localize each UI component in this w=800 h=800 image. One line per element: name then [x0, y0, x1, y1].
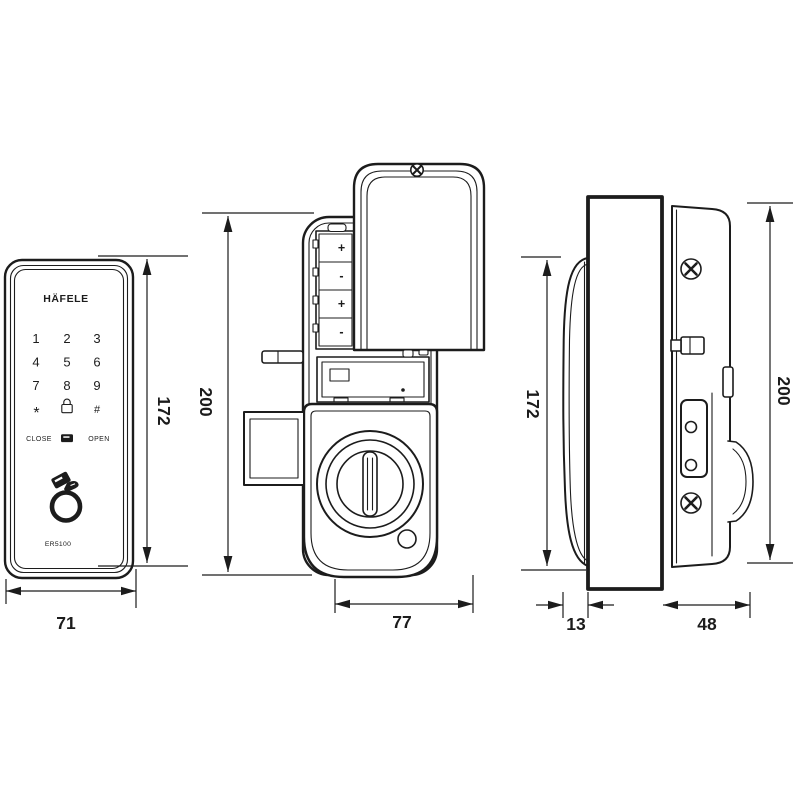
- back-height-dimension: 200: [196, 213, 314, 575]
- side-latch-tab: [671, 337, 704, 354]
- lower-cover: [304, 404, 437, 577]
- key-1[interactable]: 1: [32, 331, 39, 346]
- reader-ring[interactable]: [52, 493, 80, 521]
- side-view: 172 200 13 48: [521, 197, 794, 634]
- battery-minus-2: -: [339, 325, 343, 339]
- key-9[interactable]: 9: [93, 378, 100, 393]
- spindle-tab: [262, 351, 303, 363]
- screw-icon: [681, 493, 701, 513]
- dimension-drawing: HÄFELE 1 2 3 4 5 6 7 8 9 * # CLOSE: [0, 0, 800, 800]
- panel-depth-dimension: 13: [536, 592, 614, 634]
- lock-button[interactable]: [398, 530, 416, 548]
- brand-logo: HÄFELE: [43, 292, 89, 305]
- side-thumbturn: [728, 441, 753, 522]
- side-front-panel: [563, 258, 588, 566]
- back-width-dim-label: 77: [392, 612, 411, 632]
- front-panel-outline: [5, 260, 133, 578]
- door-section: [588, 197, 662, 589]
- side-back-height-dimension: 200: [747, 203, 794, 563]
- front-height-dim-label: 172: [154, 396, 174, 425]
- key-star[interactable]: *: [33, 405, 39, 422]
- key-2[interactable]: 2: [63, 331, 70, 346]
- body-depth-dim-label: 48: [697, 614, 717, 634]
- battery-plus-2: +: [338, 297, 345, 311]
- battery-minus-1: -: [339, 269, 343, 283]
- cover-screw-icon: [411, 164, 423, 176]
- cover-latch-tab: [403, 350, 413, 357]
- back-view: + - + -: [196, 164, 484, 632]
- key-5[interactable]: 5: [63, 355, 70, 370]
- close-label[interactable]: CLOSE: [26, 436, 52, 443]
- body-depth-dimension: 48: [663, 592, 750, 634]
- panel-depth-dim-label: 13: [566, 614, 586, 634]
- key-8[interactable]: 8: [63, 378, 70, 393]
- side-front-height-dim-label: 172: [523, 389, 543, 418]
- key-hash[interactable]: #: [94, 404, 101, 416]
- battery-compartment: + - + -: [313, 224, 358, 349]
- connector-socket: [330, 369, 349, 381]
- inner-compartment: [317, 357, 429, 402]
- card-icon[interactable]: [61, 434, 73, 442]
- side-back-height-dim-label: 200: [774, 376, 794, 405]
- model-label: ER5100: [45, 541, 71, 548]
- key-7[interactable]: 7: [32, 378, 39, 393]
- latch-bolt: [244, 412, 304, 485]
- back-width-dimension: 77: [335, 575, 473, 632]
- reset-hole: [401, 388, 405, 392]
- battery-cover-flap[interactable]: [354, 164, 484, 357]
- screw-icon: [681, 259, 701, 279]
- key-3[interactable]: 3: [93, 331, 100, 346]
- strike-plate: [681, 400, 707, 477]
- back-height-dim-label: 200: [196, 387, 216, 416]
- battery-plus-1: +: [338, 241, 345, 255]
- front-view: HÄFELE 1 2 3 4 5 6 7 8 9 * # CLOSE: [5, 256, 188, 633]
- front-width-dim-label: 71: [56, 613, 76, 633]
- open-label[interactable]: OPEN: [88, 436, 109, 443]
- key-6[interactable]: 6: [93, 355, 100, 370]
- cover-latch-tab: [419, 350, 428, 355]
- side-lever: [723, 367, 733, 397]
- side-back-unit: [671, 206, 753, 567]
- thumbturn-knob[interactable]: [363, 452, 377, 516]
- key-4[interactable]: 4: [32, 355, 39, 370]
